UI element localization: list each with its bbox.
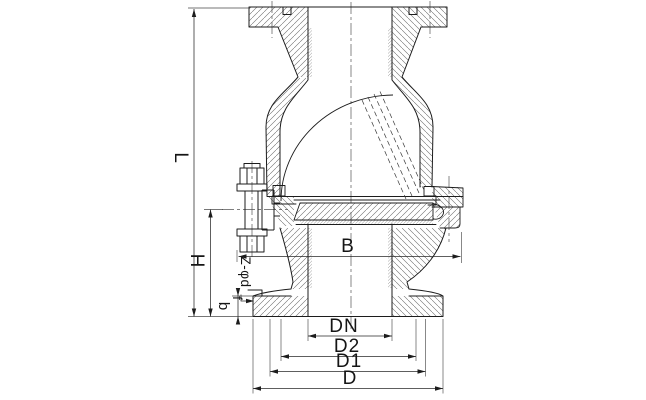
dim-label-DN: DN bbox=[329, 316, 358, 337]
technical-drawing-canvas: L H b f Z-φd B DN D2 D1 D bbox=[0, 0, 646, 400]
dimension-labels: L H b f Z-φd B DN D2 D1 D bbox=[170, 152, 362, 389]
dim-label-b: b bbox=[215, 302, 232, 310]
centerlines bbox=[222, 1, 449, 332]
dim-label-B: B bbox=[341, 236, 355, 257]
dim-label-Z-phi-d: Z-φd bbox=[238, 256, 253, 287]
dimension-lines bbox=[194, 9, 461, 389]
dim-label-D: D bbox=[343, 368, 358, 389]
dim-label-H: H bbox=[186, 254, 207, 269]
dim-label-f: f bbox=[230, 296, 245, 300]
dim-label-L: L bbox=[170, 152, 191, 164]
disc-swing-arc bbox=[281, 95, 393, 201]
valve-cross-section-drawing: L H b f Z-φd B DN D2 D1 D bbox=[0, 0, 646, 400]
